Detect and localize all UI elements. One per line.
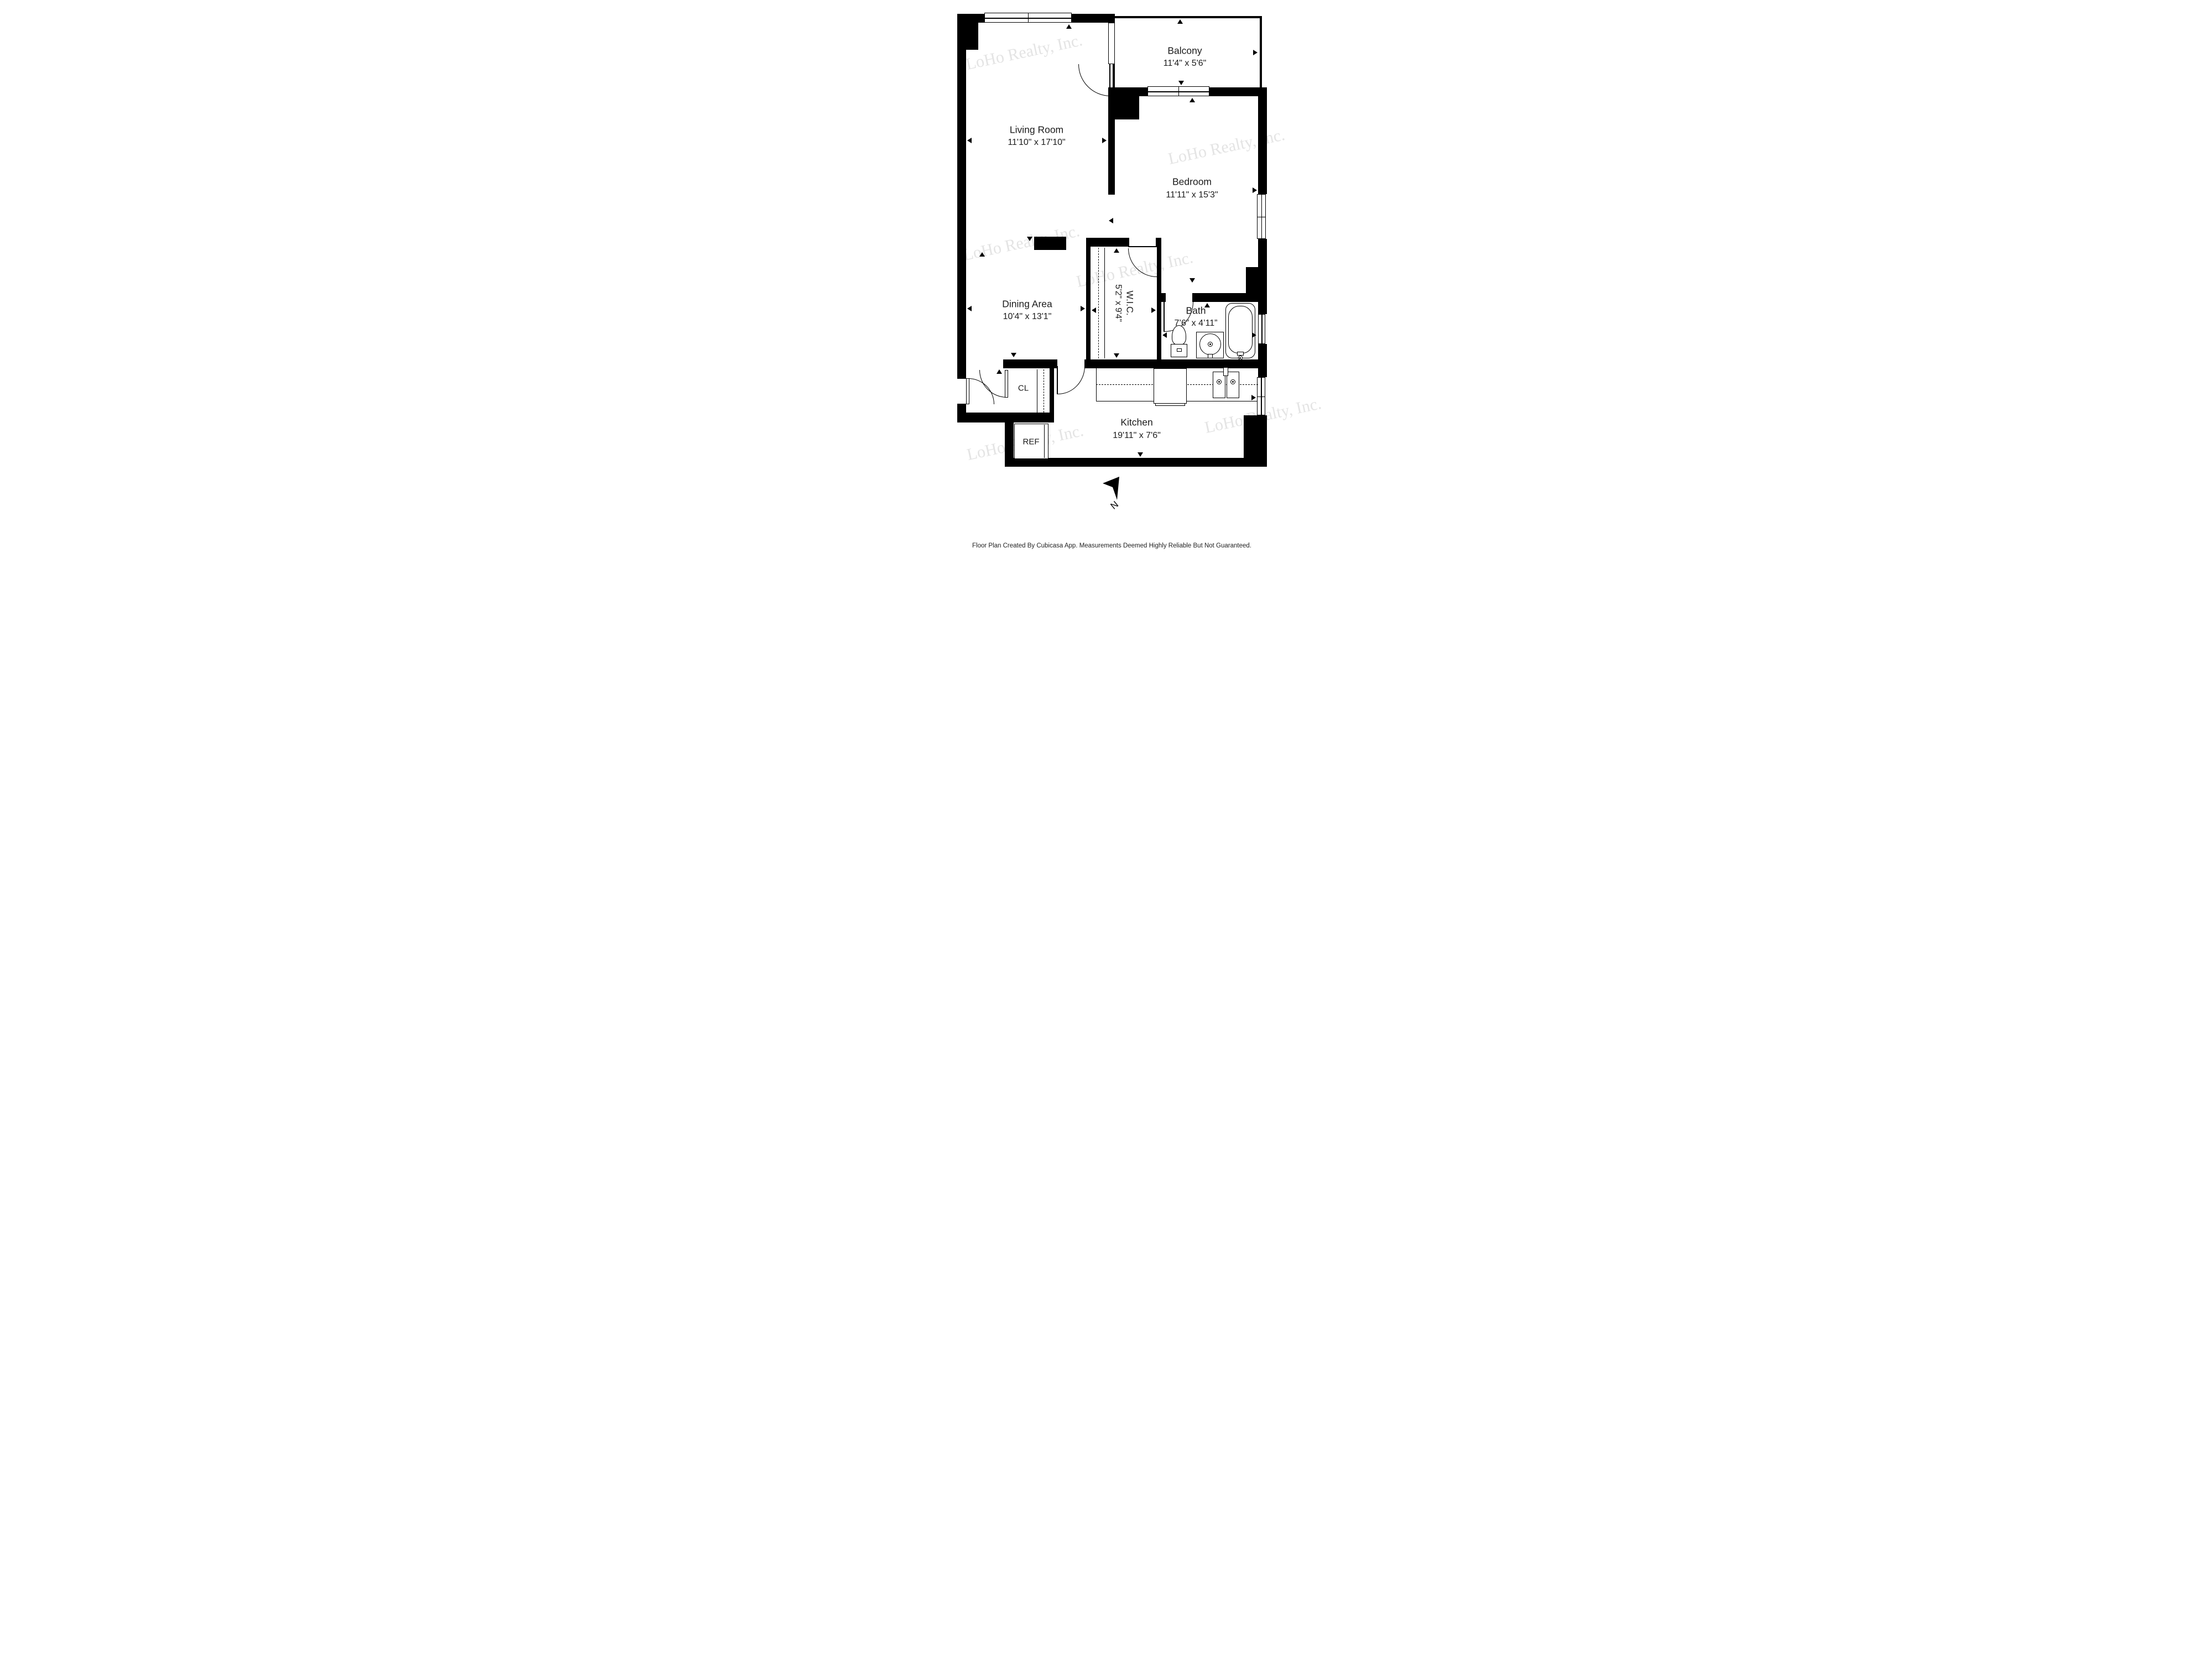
wall-wic-right — [1157, 238, 1161, 368]
column — [1034, 237, 1066, 250]
north-arrow-needle — [1103, 477, 1119, 500]
bath-sink-drain — [1208, 342, 1213, 347]
room-dims-living: 11'10" x 17'10" — [1008, 138, 1065, 148]
room-dims-bedroom: 11'11" x 15'3" — [1166, 190, 1218, 200]
balcony-rail — [1113, 16, 1262, 18]
measure-arrow-down — [1011, 353, 1016, 357]
window-mullion — [1148, 91, 1209, 92]
cl-rod-dashed-line — [1044, 369, 1044, 413]
measure-arrow-down — [1178, 81, 1184, 85]
wall-left — [957, 14, 966, 378]
measure-arrow-left — [1006, 437, 1011, 443]
floor-plan-canvas: LoHo Realty, Inc. LoHo Realty, Inc. LoHo… — [738, 0, 1475, 553]
measure-arrow-left — [967, 306, 972, 311]
measure-arrow-right — [1251, 395, 1256, 400]
stove-front-rail — [1155, 403, 1185, 406]
measure-arrow-down — [1138, 452, 1143, 457]
measure-arrow-down — [1114, 353, 1119, 358]
balcony-door-leaf — [1109, 64, 1110, 96]
watermark: LoHo Realty, Inc. — [1166, 126, 1286, 169]
window-bedroom-top — [1147, 86, 1209, 96]
measure-arrow-up — [1066, 24, 1072, 29]
room-label-living: Living Room — [1010, 124, 1063, 136]
room-label-kitchen: Kitchen — [1120, 417, 1152, 429]
measure-arrow-up — [1190, 98, 1195, 102]
room-dims-dining: 10'4" x 13'1" — [1003, 312, 1052, 322]
wall-right — [1258, 344, 1267, 377]
bath-sink-faucet — [1208, 354, 1213, 358]
window-bedroom-right — [1257, 194, 1266, 239]
window-mullion — [985, 18, 1071, 19]
balcony-door-frame — [1108, 23, 1115, 64]
measure-arrow-left — [967, 138, 972, 143]
wall-kitchen-bottom — [1005, 458, 1258, 467]
refrigerator-label: REF — [1023, 437, 1040, 447]
wic-name: W.I.C. — [1123, 284, 1135, 322]
refrigerator-door-line — [1044, 425, 1045, 458]
window-mullion — [1258, 217, 1265, 218]
measure-arrow-right — [1253, 187, 1257, 193]
entry-door-leaf — [966, 378, 969, 404]
balcony-rail — [1260, 16, 1262, 88]
measure-arrow-right — [1102, 138, 1107, 143]
entry-door-opening — [957, 378, 966, 404]
north-arrow: N — [1096, 473, 1131, 513]
wall-vestibule-bottom — [957, 413, 1054, 422]
measure-arrow-right — [1151, 307, 1156, 313]
wic-door-opening — [1129, 238, 1156, 247]
north-arrow-label: N — [1108, 499, 1120, 511]
cl-shelf-line — [1037, 369, 1038, 413]
entry-closet-door-leaf — [1005, 370, 1008, 398]
measure-arrow-right — [1252, 332, 1256, 338]
sink-drain — [1217, 379, 1222, 384]
closet-label: CL — [1018, 384, 1029, 393]
bathtub-basin — [1228, 306, 1253, 353]
measure-arrow-down — [1190, 278, 1195, 283]
kitchen-door-swing — [1058, 366, 1085, 394]
wall-bedroom-corner-block — [1108, 87, 1139, 119]
wic-door-leaf — [1128, 246, 1157, 247]
wall-bedroom-block — [1246, 267, 1267, 293]
measure-arrow-up — [979, 252, 985, 257]
kitchen-faucet — [1223, 367, 1228, 376]
measure-arrow-left — [1109, 218, 1113, 223]
measure-arrow-left — [1092, 307, 1096, 313]
wall-cl-right — [1050, 359, 1054, 417]
room-dims-balcony: 11'4" x 5'6" — [1164, 59, 1207, 69]
window-living-top — [984, 13, 1072, 23]
sink-drain — [1230, 379, 1235, 384]
measure-arrow-up — [1114, 248, 1119, 253]
room-label-balcony: Balcony — [1167, 45, 1202, 57]
wall-kitchen-right-block — [1244, 415, 1267, 467]
room-label-dining: Dining Area — [1002, 299, 1052, 310]
measure-arrow-up — [997, 369, 1002, 374]
measure-arrow-right — [1081, 306, 1085, 311]
room-label-bath: Bath — [1186, 305, 1206, 317]
room-label-bedroom: Bedroom — [1172, 176, 1212, 188]
window-kitchen-right — [1257, 377, 1265, 415]
window-mullion — [1258, 397, 1265, 398]
window-bath-right — [1258, 314, 1265, 344]
room-label-wic: W.I.C. 5'2" x 9'4" — [1112, 284, 1135, 322]
measure-arrow-right — [1253, 50, 1258, 55]
wall-wic-left — [1086, 247, 1091, 359]
toilet-flush-button — [1177, 348, 1182, 352]
bath-door-leaf — [1164, 302, 1165, 332]
window-mullion — [1261, 315, 1262, 343]
measure-arrow-left — [1162, 332, 1167, 338]
bathtub-drain — [1238, 356, 1243, 360]
room-dims-kitchen: 19'11" x 7'6" — [1113, 431, 1161, 441]
wall-dining-bottom — [1003, 359, 1057, 368]
balcony-door-swing — [1078, 64, 1110, 96]
kitchen-sink-basin — [1227, 372, 1239, 398]
wic-dims: 5'2" x 9'4" — [1112, 284, 1123, 322]
bath-door-opening — [1165, 293, 1193, 302]
stove — [1154, 368, 1187, 404]
bathtub-faucet — [1237, 352, 1244, 356]
wic-shelf-line — [1104, 248, 1105, 358]
wic-rod-dashed-line — [1098, 248, 1099, 358]
kitchen-door-leaf — [1057, 366, 1058, 394]
room-dims-bath: 7’6” x 4’11” — [1175, 319, 1218, 328]
wall-right — [1258, 87, 1267, 194]
wall-lower-main — [1085, 359, 1258, 368]
footer-disclaimer: Floor Plan Created By Cubicasa App. Meas… — [972, 542, 1251, 549]
watermark: LoHo Realty, Inc. — [964, 31, 1084, 74]
measure-arrow-up — [1177, 19, 1183, 24]
measure-arrow-down — [1027, 237, 1032, 241]
